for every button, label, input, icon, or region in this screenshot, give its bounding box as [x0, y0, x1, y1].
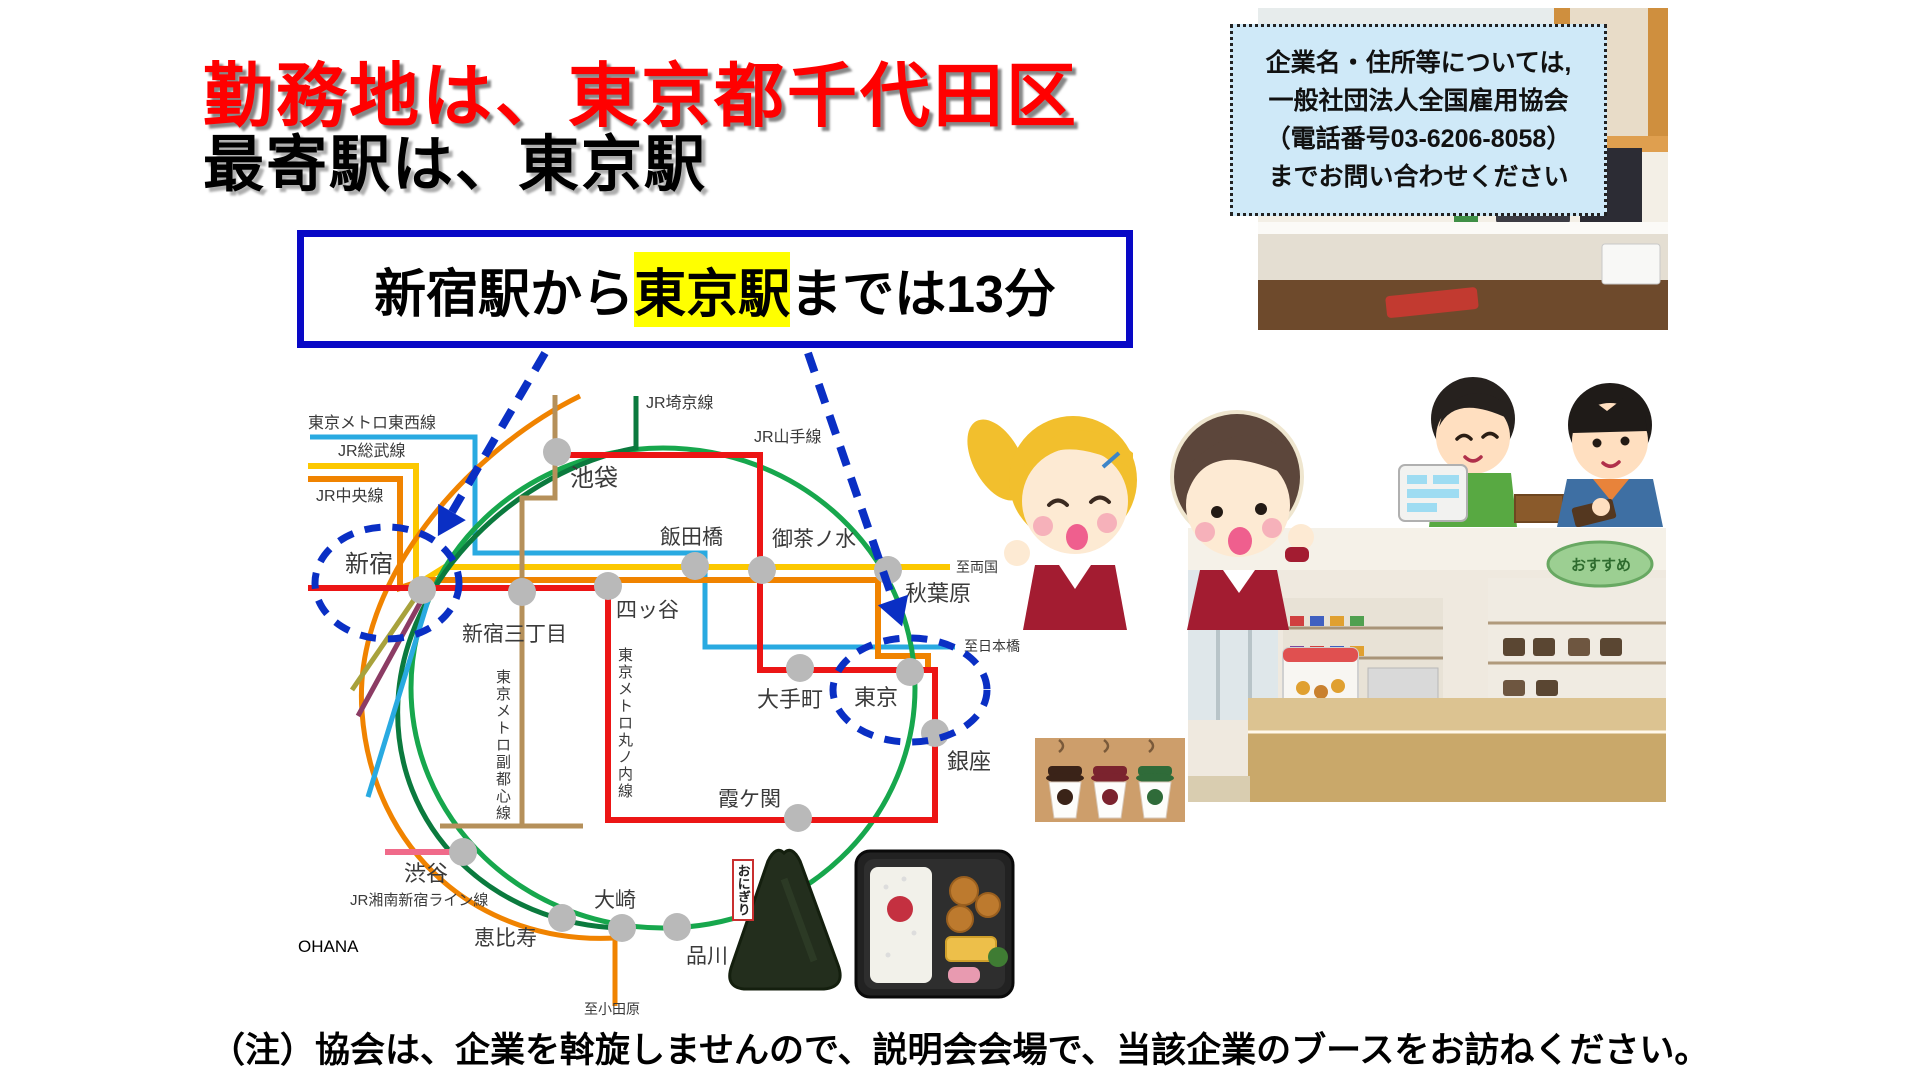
- line-jr-chuo: [308, 479, 928, 668]
- station-label-osaki: 大崎: [594, 889, 636, 912]
- transfer-suffix: までは13分: [790, 252, 1056, 327]
- station-label-otemachi: 大手町: [757, 687, 823, 712]
- onigiri-illustration: おにぎり: [722, 845, 847, 1000]
- line-tokyo-metro-tozai: [310, 437, 955, 647]
- station-label-tokyo: 東京: [854, 685, 898, 710]
- station-otemachi: [786, 654, 814, 682]
- station-label-shinjuku-sanchome: 新宿三丁目: [462, 623, 567, 646]
- highlight-ellipse-tokyo-circle: [833, 638, 987, 742]
- line-tokyo-metro-fukutoshin: [440, 395, 583, 826]
- transfer-highlight: 東京駅: [634, 252, 790, 327]
- map-label: OHANA: [298, 937, 359, 956]
- clerk-girl-blonde: [955, 410, 1137, 630]
- station-yotsuya: [594, 572, 622, 600]
- contact-line-3: （電話番号03-6206-8058）: [1233, 120, 1604, 158]
- map-label: JR中央線: [316, 487, 384, 505]
- map-label: JR総武線: [338, 442, 406, 460]
- arrow-to-shinjuku-head: [438, 504, 466, 536]
- station-kasumigaseki: [784, 804, 812, 832]
- map-label: 東京メトロ東西線: [308, 414, 436, 432]
- cash-register: [1399, 465, 1467, 521]
- station-label-ochanomizu: 御茶ノ水: [772, 528, 856, 551]
- station-label-shinjuku: 新宿: [345, 551, 393, 578]
- clerk-girl-brunette: [1170, 410, 1314, 630]
- customer: [1557, 383, 1663, 527]
- map-label: 東京メトロ丸ノ内線: [618, 647, 633, 800]
- contact-line-4: までお問い合わせください: [1233, 158, 1604, 196]
- contact-line-2: 一般社団法人全国雇用協会: [1233, 82, 1604, 120]
- coffee-cups-illustration: [1035, 738, 1185, 822]
- station-label-ikebukuro: 池袋: [570, 465, 618, 492]
- station-shinjuku-sanchome: [508, 578, 536, 606]
- station-osaki: [608, 914, 636, 942]
- map-label: 至小田原: [584, 1001, 640, 1017]
- slide: 勤務地は、東京都千代田区 最寄駅は、東京駅 新宿駅から東京駅までは13分 企業名…: [0, 0, 1920, 1080]
- highlight-ellipse-shinjuku-circle: [315, 527, 459, 639]
- transfer-prefix: 新宿駅から: [374, 252, 634, 327]
- map-label: 東京メトロ副都心線: [496, 669, 511, 822]
- sub-title-black: 最寄駅は、東京駅: [203, 114, 707, 203]
- arrow-to-tokyo: [808, 353, 893, 600]
- station-shinjuku: [408, 576, 436, 604]
- line-purple-stub: [358, 592, 426, 716]
- bento-illustration: [852, 835, 1017, 1005]
- line-jr-sobu: [308, 466, 950, 585]
- map-label: JR湘南新宿ライン線: [350, 892, 488, 909]
- station-label-iidabashi: 飯田橋: [660, 526, 723, 549]
- station-iidabashi: [681, 552, 709, 580]
- map-label: JR埼京線: [646, 394, 714, 412]
- line-jr-saikyo: [398, 396, 636, 928]
- arrow-to-tokyo-head: [878, 595, 908, 627]
- map-label: 至日本橋: [964, 638, 1020, 654]
- station-label-kasumigaseki: 霞ケ関: [718, 788, 781, 811]
- station-shibuya: [449, 838, 477, 866]
- umeboshi: [887, 896, 913, 922]
- map-label: JR山手線: [754, 428, 822, 446]
- station-label-ginza: 銀座: [947, 749, 991, 774]
- arrow-to-shinjuku: [452, 353, 545, 512]
- station-ochanomizu: [748, 556, 776, 584]
- recommend-sign-label: おすすめ: [1556, 554, 1646, 575]
- station-ebisu: [548, 904, 576, 932]
- footnote: （注）協会は、企業を斡旋しませんので、説明会会場で、当該企業のブースをお訪ねくだ…: [210, 1022, 1750, 1073]
- contact-info-box: 企業名・住所等については, 一般社団法人全国雇用協会 （電話番号03-6206-…: [1230, 24, 1607, 216]
- line-tokyo-metro-marunouchi: [308, 455, 935, 820]
- line-jr-shonan-shinjuku: [361, 396, 615, 1006]
- transfer-time-box: 新宿駅から東京駅までは13分: [297, 230, 1133, 348]
- station-label-ebisu: 恵比寿: [474, 927, 537, 950]
- station-akihabara: [874, 556, 902, 584]
- clerks-illustration: [955, 365, 1355, 630]
- line-olive-stub: [352, 588, 422, 690]
- station-label-shibuya: 渋谷: [404, 861, 448, 886]
- station-label-yotsuya: 四ッ谷: [616, 599, 679, 622]
- line-lightblue-stub: [368, 594, 430, 797]
- parcel-box: [1515, 495, 1563, 522]
- station-shinagawa: [663, 913, 691, 941]
- station-tokyo: [896, 658, 924, 686]
- cashier-illustration: [1395, 315, 1665, 527]
- station-ikebukuro: [543, 438, 571, 466]
- station-ginza: [921, 719, 949, 747]
- contact-line-1: 企業名・住所等については,: [1233, 44, 1604, 82]
- onigiri-tag: おにぎり: [732, 859, 754, 921]
